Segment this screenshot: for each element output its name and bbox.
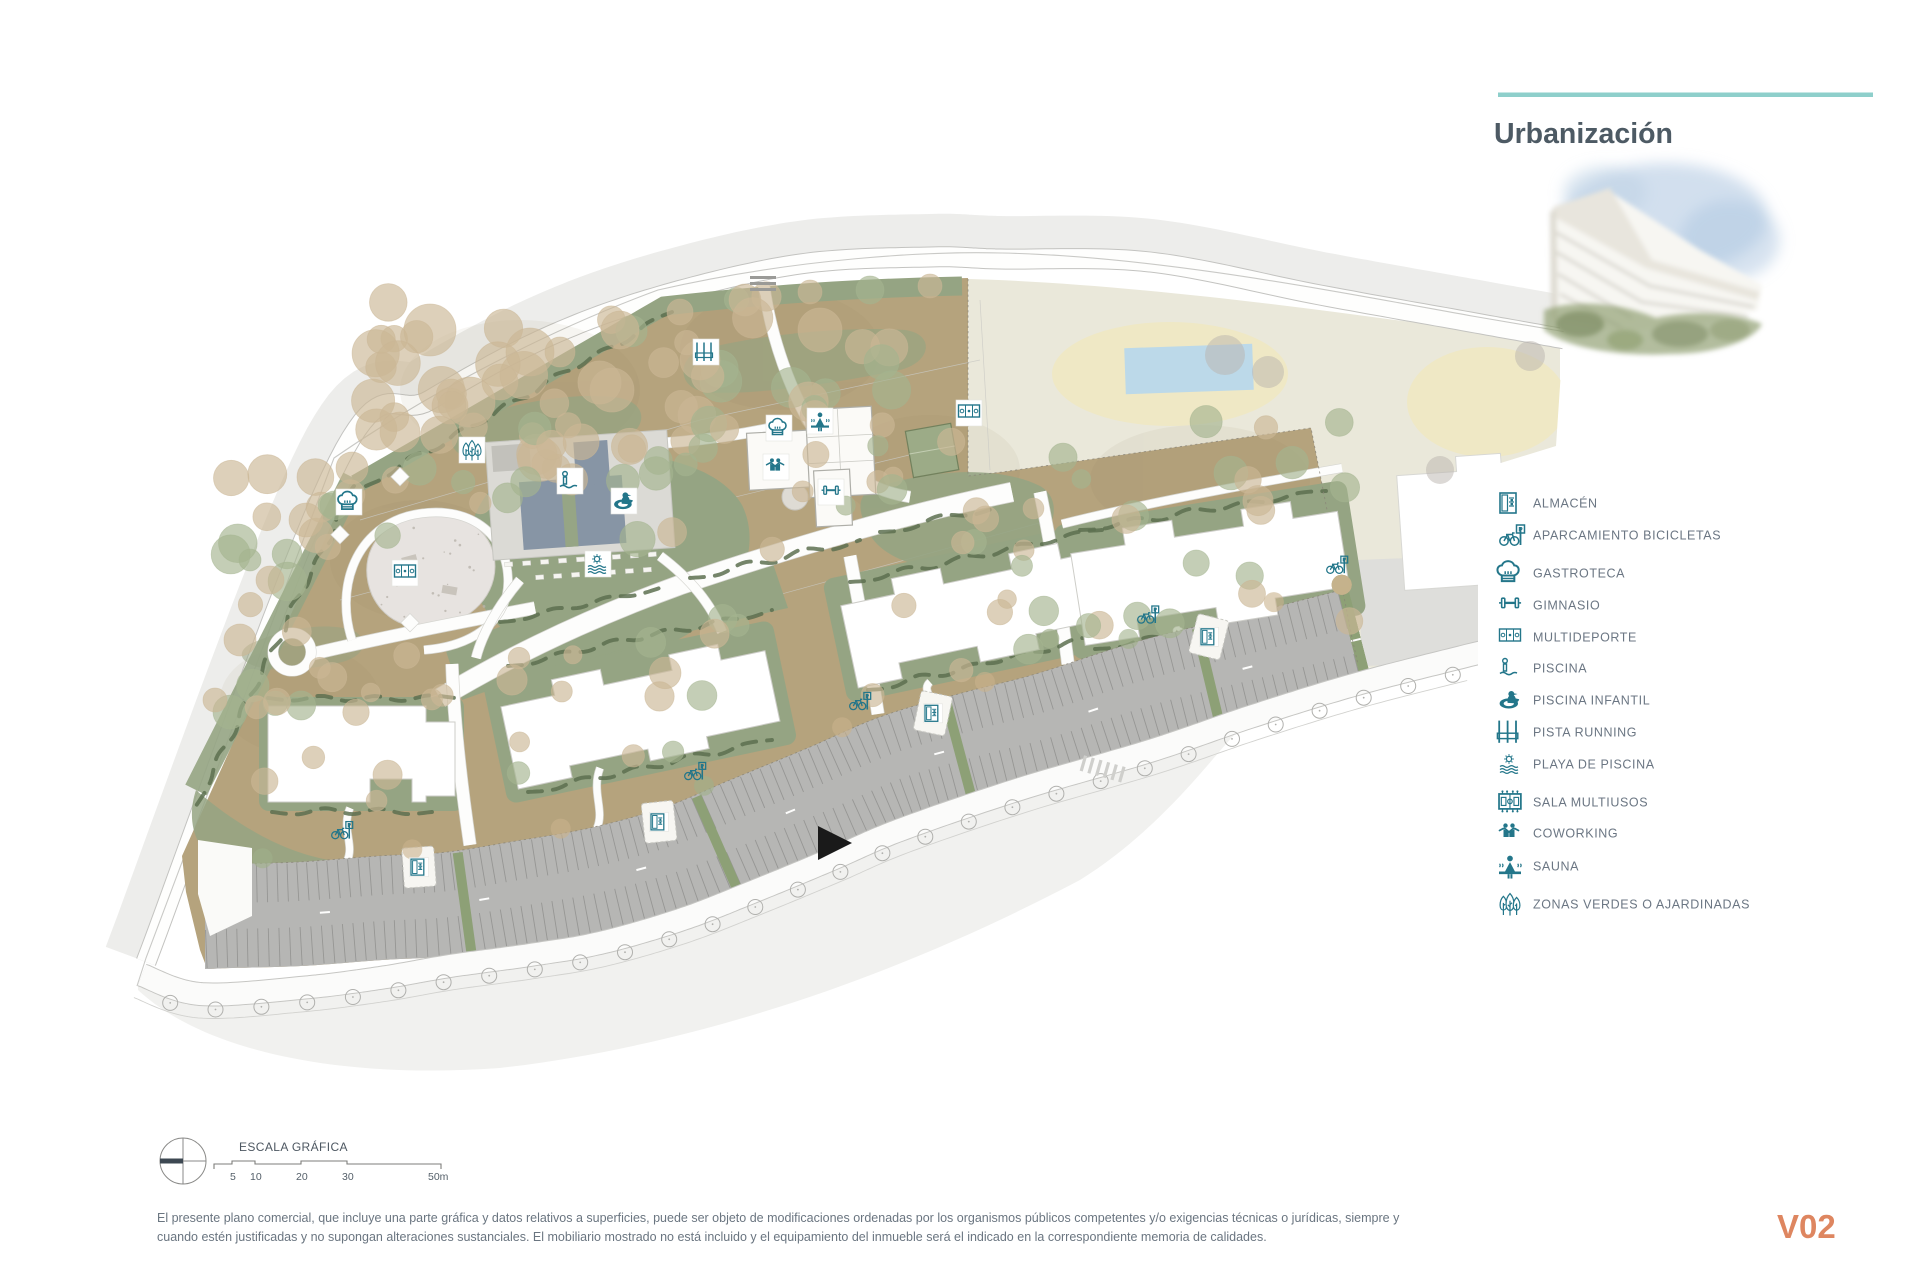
svg-text:PISTA RUNNING: PISTA RUNNING xyxy=(1533,726,1637,740)
svg-text:SALA MULTIUSOS: SALA MULTIUSOS xyxy=(1533,796,1648,810)
svg-text:ESCALA GRÁFICA: ESCALA GRÁFICA xyxy=(239,1139,348,1154)
svg-text:50m: 50m xyxy=(428,1171,449,1183)
svg-text:Urbanización: Urbanización xyxy=(1494,118,1673,150)
svg-text:SAUNA: SAUNA xyxy=(1533,860,1579,874)
svg-text:GIMNASIO: GIMNASIO xyxy=(1533,599,1600,613)
svg-text:GASTROTECA: GASTROTECA xyxy=(1533,567,1625,581)
svg-text:PLAYA DE PISCINA: PLAYA DE PISCINA xyxy=(1533,758,1655,772)
svg-text:MULTIDEPORTE: MULTIDEPORTE xyxy=(1533,631,1637,645)
svg-text:APARCAMIENTO BICICLETAS: APARCAMIENTO BICICLETAS xyxy=(1533,529,1721,543)
svg-text:El presente plano comercial, q: El presente plano comercial, que incluye… xyxy=(157,1211,1400,1225)
svg-text:20: 20 xyxy=(296,1171,308,1183)
svg-text:COWORKING: COWORKING xyxy=(1533,827,1618,841)
svg-text:PISCINA INFANTIL: PISCINA INFANTIL xyxy=(1533,694,1650,708)
svg-text:ZONAS VERDES O AJARDINADAS: ZONAS VERDES O AJARDINADAS xyxy=(1533,898,1750,912)
svg-text:PISCINA: PISCINA xyxy=(1533,662,1587,676)
svg-text:30: 30 xyxy=(342,1171,354,1183)
svg-text:5: 5 xyxy=(230,1171,236,1183)
svg-text:cuando estén justificadas y no: cuando estén justificadas y no supongan … xyxy=(157,1230,1267,1244)
svg-text:10: 10 xyxy=(250,1171,262,1183)
svg-text:ALMACÉN: ALMACÉN xyxy=(1533,496,1598,511)
svg-text:V02: V02 xyxy=(1777,1208,1836,1245)
